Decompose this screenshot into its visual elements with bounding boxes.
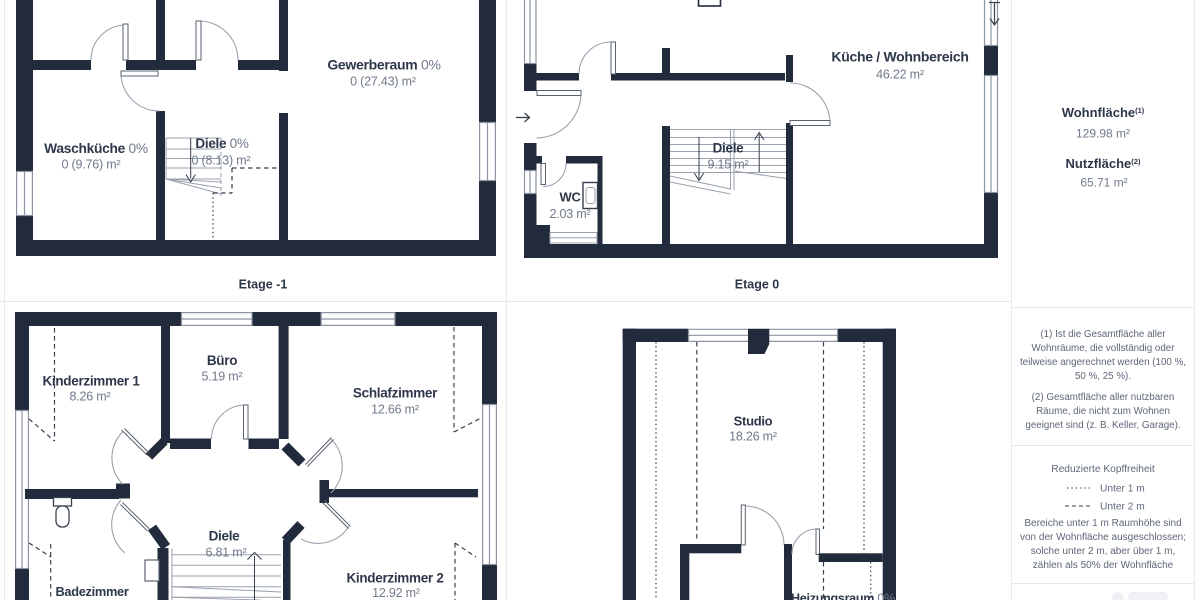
svg-text:Badezimmer: Badezimmer [55, 584, 128, 599]
svg-text:zählen als 50% der Wohnfläche: zählen als 50% der Wohnfläche [1033, 560, 1174, 571]
svg-text:solche unter 2 m, aber über 1: solche unter 2 m, aber über 1 m, [1031, 546, 1176, 557]
svg-text:46.22 m²: 46.22 m² [876, 68, 924, 82]
svg-text:12.66 m²: 12.66 m² [371, 403, 419, 417]
svg-text:geeignet sind (z. B. Keller, G: geeignet sind (z. B. Keller, Garage). [1025, 420, 1180, 431]
svg-text:65.71 m²: 65.71 m² [1080, 176, 1127, 190]
svg-text:50 %, 25 %).: 50 %, 25 %). [1075, 371, 1131, 382]
svg-text:0 (9.76) m²: 0 (9.76) m² [62, 158, 121, 172]
svg-text:6.81 m²: 6.81 m² [206, 546, 247, 560]
svg-text:Unter 2 m: Unter 2 m [1100, 502, 1145, 513]
svg-text:Gewerberaum 0%: Gewerberaum 0% [327, 57, 440, 73]
svg-text:teilweise angerechnet werden (: teilweise angerechnet werden (100 %, [1020, 357, 1186, 368]
svg-text:Kinderzimmer 2: Kinderzimmer 2 [346, 571, 443, 586]
svg-text:Wohnräume, die vollständig ode: Wohnräume, die vollständig oder [1031, 343, 1175, 354]
svg-text:Reduzierte Kopffreiheit: Reduzierte Kopffreiheit [1051, 464, 1155, 475]
svg-text:Unter 1 m: Unter 1 m [1100, 484, 1145, 495]
svg-text:2.03 m²: 2.03 m² [550, 207, 591, 221]
svg-text:Kinderzimmer 1: Kinderzimmer 1 [42, 374, 140, 389]
svg-text:Bereiche unter 1 m Raumhöhe si: Bereiche unter 1 m Raumhöhe sind [1024, 518, 1181, 529]
svg-text:Räume, die nicht zum Wohnen: Räume, die nicht zum Wohnen [1036, 406, 1170, 417]
svg-text:Heizungsraum 0%: Heizungsraum 0% [791, 592, 895, 600]
svg-text:WC: WC [559, 190, 581, 205]
svg-text:5.19 m²: 5.19 m² [202, 370, 243, 384]
svg-text:0 (8.13) m²: 0 (8.13) m² [192, 154, 251, 168]
svg-text:0 (27.43) m²: 0 (27.43) m² [350, 75, 416, 89]
svg-text:Waschküche 0%: Waschküche 0% [44, 141, 148, 156]
svg-text:Schlafzimmer: Schlafzimmer [353, 386, 438, 401]
svg-text:129.98 m²: 129.98 m² [1076, 127, 1130, 141]
svg-text:Diele: Diele [209, 529, 241, 544]
svg-text:Studio: Studio [734, 414, 773, 429]
svg-text:Diele: Diele [713, 141, 745, 156]
svg-text:Nutzfläche(2): Nutzfläche(2) [1066, 156, 1141, 171]
svg-text:Etage -1: Etage -1 [239, 278, 288, 292]
svg-text:9.15 m²: 9.15 m² [708, 158, 749, 172]
svg-text:Diele 0%: Diele 0% [195, 136, 248, 151]
svg-text:18.26 m²: 18.26 m² [729, 430, 777, 444]
svg-text:Küche / Wohnbereich: Küche / Wohnbereich [831, 49, 968, 65]
svg-text:8.26 m²: 8.26 m² [70, 390, 111, 404]
svg-text:Wohnfläche(1): Wohnfläche(1) [1062, 105, 1145, 120]
svg-text:12.92 m²: 12.92 m² [372, 586, 420, 600]
svg-text:(1) Ist die Gesamtfläche aller: (1) Ist die Gesamtfläche aller [1040, 329, 1166, 340]
svg-text:Büro: Büro [207, 353, 237, 368]
svg-text:(2) Gesamtfläche aller nutzbar: (2) Gesamtfläche aller nutzbaren [1032, 392, 1175, 403]
svg-text:Etage 0: Etage 0 [735, 278, 780, 292]
svg-text:von der Wohnfläche ausgeschlos: von der Wohnfläche ausgeschlossen; [1020, 532, 1186, 543]
